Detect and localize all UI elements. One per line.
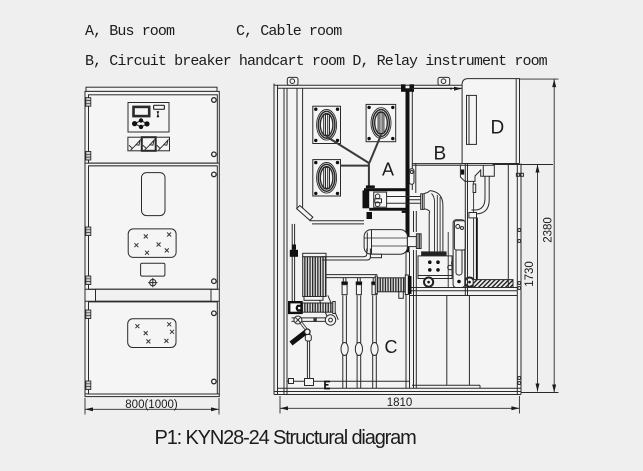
svg-text:1810: 1810 [387,397,413,409]
svg-text:A: A [382,160,394,180]
svg-text:C: C [385,337,398,357]
svg-text:B: B [434,144,447,165]
svg-text:1730: 1730 [524,261,536,287]
svg-text:800(1000): 800(1000) [125,399,178,411]
svg-text:A, Bus room: A, Bus room [85,23,175,40]
svg-text:B, Circuit breaker handcart ro: B, Circuit breaker handcart room D, Rela… [85,53,548,70]
svg-text:P1: KYN28-24 Structural diagra: P1: KYN28-24 Structural diagram [155,427,417,449]
svg-text:D: D [491,118,505,139]
svg-text:2380: 2380 [543,217,555,243]
svg-text:C, Cable room: C, Cable room [236,23,342,40]
